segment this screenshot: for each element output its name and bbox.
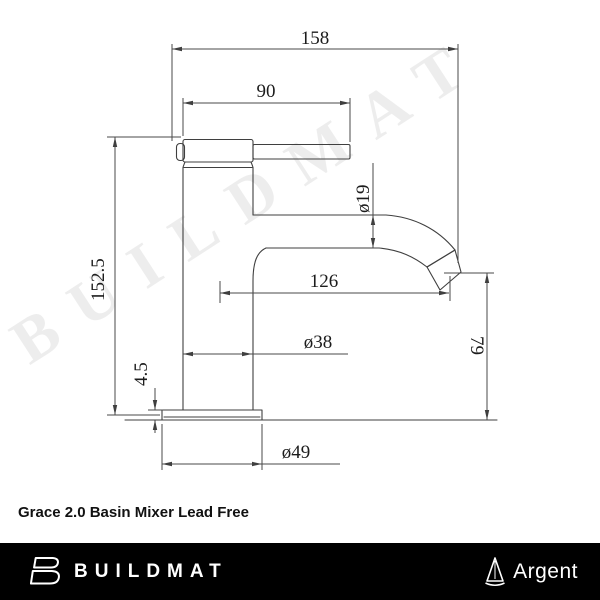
dim-base-thickness: 4.5 bbox=[131, 362, 163, 433]
handle-block bbox=[183, 140, 253, 163]
dim-spout-diameter: ø19 bbox=[353, 163, 375, 248]
dim-spout-diameter-label: ø19 bbox=[353, 185, 374, 214]
product-dimension-image: BUILDMAT bbox=[0, 0, 600, 600]
dim-body-diameter: ø38 bbox=[183, 332, 348, 356]
dim-base-thickness-label: 4.5 bbox=[131, 362, 152, 386]
spout-nozzle bbox=[427, 250, 461, 290]
buildmat-icon bbox=[30, 554, 64, 590]
buildmat-wordmark: BUILDMAT bbox=[74, 561, 228, 583]
dim-overall-length-label: 158 bbox=[301, 28, 330, 49]
argent-sail-icon bbox=[482, 555, 508, 589]
spout-body-fillet bbox=[253, 248, 266, 281]
dim-spout-reach-label: 126 bbox=[310, 271, 339, 292]
buildmat-logo: BUILDMAT bbox=[30, 554, 228, 590]
dim-spout-reach: 126 bbox=[220, 271, 450, 303]
dim-overall-length: 158 bbox=[172, 28, 458, 263]
faucet-technical-drawing: 158 90 ø19 152.5 126 bbox=[0, 0, 600, 543]
neck bbox=[183, 162, 253, 168]
spout-bottom-edge bbox=[266, 248, 427, 267]
argent-wordmark: Argent bbox=[513, 560, 578, 584]
spout-top-edge bbox=[253, 215, 455, 250]
product-title: Grace 2.0 Basin Mixer Lead Free bbox=[18, 504, 249, 521]
dim-outlet-height-label: 79 bbox=[466, 336, 487, 355]
base-plate bbox=[162, 410, 262, 420]
dim-base-diameter-label: ø49 bbox=[282, 442, 311, 463]
dim-outlet-height: 79 bbox=[444, 273, 494, 420]
dim-handle-reach: 90 bbox=[183, 81, 350, 142]
dim-handle-reach-label: 90 bbox=[257, 81, 276, 102]
dim-base-diameter: ø49 bbox=[162, 424, 340, 470]
dim-body-diameter-label: ø38 bbox=[304, 332, 333, 353]
argent-logo: Argent bbox=[482, 555, 578, 589]
dim-overall-height-label: 152.5 bbox=[88, 258, 109, 301]
footer-brand-bar: BUILDMAT Argent bbox=[0, 543, 600, 600]
handle-lever bbox=[253, 145, 350, 160]
